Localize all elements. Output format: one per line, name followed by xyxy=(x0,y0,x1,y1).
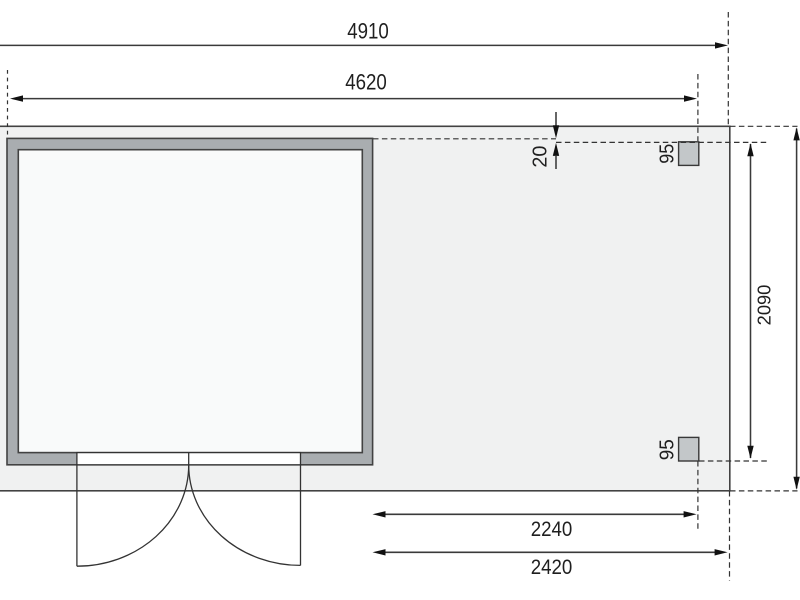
svg-text:2420: 2420 xyxy=(531,556,573,579)
svg-text:20: 20 xyxy=(529,146,551,168)
svg-text:4620: 4620 xyxy=(345,69,387,94)
svg-text:95: 95 xyxy=(656,439,678,460)
svg-text:2240: 2240 xyxy=(531,518,573,541)
svg-text:2090: 2090 xyxy=(754,285,775,326)
svg-text:4910: 4910 xyxy=(347,18,389,43)
svg-text:95: 95 xyxy=(656,144,678,164)
